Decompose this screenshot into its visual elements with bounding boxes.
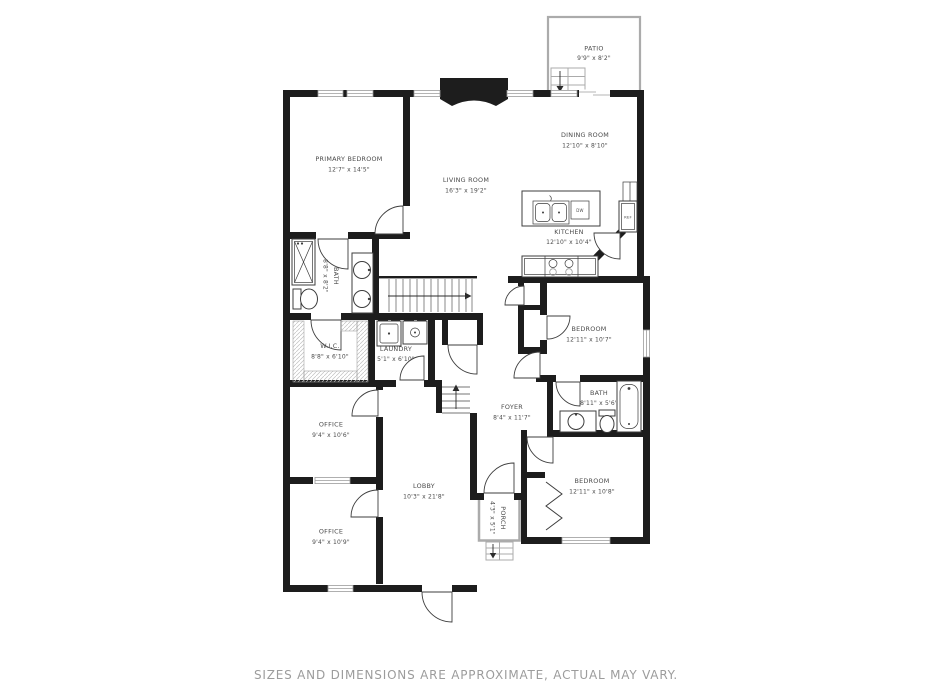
sliding-door <box>579 90 610 98</box>
window <box>562 537 610 543</box>
pantry-cabinet <box>623 182 637 201</box>
svg-text:12'10" x 8'10": 12'10" x 8'10" <box>562 143 608 150</box>
window <box>328 585 353 591</box>
floor-plan: DW REF <box>0 0 933 700</box>
stairs-lobby <box>442 385 470 414</box>
svg-text:BEDROOM: BEDROOM <box>574 477 609 485</box>
window <box>643 330 649 357</box>
kitchen-island: DW <box>522 191 600 226</box>
refrigerator: REF <box>619 201 637 232</box>
stove-counter <box>522 256 598 277</box>
bathtub <box>617 381 641 432</box>
door-bath2 <box>556 382 580 406</box>
dryer <box>403 321 427 344</box>
floor-plan-page: DW REF <box>0 0 933 700</box>
room-label-bedroom-lower: BEDROOM 12'11" x 10'8" <box>569 477 615 496</box>
svg-text:PORCH: PORCH <box>499 506 507 530</box>
svg-text:9'4" x 10'9": 9'4" x 10'9" <box>312 539 350 546</box>
svg-text:LAUNDRY: LAUNDRY <box>380 345 412 353</box>
door-bedroom-mid <box>514 352 540 378</box>
toilet <box>599 410 615 433</box>
stairs-up-arrow <box>465 293 472 300</box>
room-label-primary-bedroom: PRIMARY BEDROOM 12'7" x 14'5" <box>315 155 382 174</box>
dishwasher-label: DW <box>576 208 583 213</box>
room-label-porch: PORCH 4'3" x 5'1" <box>489 501 508 535</box>
svg-text:LIVING ROOM: LIVING ROOM <box>443 176 489 184</box>
room-label-foyer: FOYER 8'4" x 11'7" <box>493 403 531 422</box>
svg-text:9'9" x 8'2": 9'9" x 8'2" <box>577 55 611 62</box>
svg-text:W.I.C.: W.I.C. <box>320 342 340 350</box>
window <box>414 90 440 96</box>
door-front-entry <box>484 463 514 493</box>
svg-text:8'8" x 6'10": 8'8" x 6'10" <box>311 354 349 361</box>
room-label-laundry: LAUNDRY 5'1" x 6'10" <box>377 345 415 363</box>
svg-text:12'11" x 10'8": 12'11" x 10'8" <box>569 489 615 496</box>
room-label-bedroom-mid: BEDROOM 12'11" x 10'7" <box>566 325 612 344</box>
svg-text:FOYER: FOYER <box>501 403 523 411</box>
svg-text:BEDROOM: BEDROOM <box>571 325 606 333</box>
refrigerator-label: REF <box>624 215 632 220</box>
svg-text:12'11" x 10'7": 12'11" x 10'7" <box>566 337 612 344</box>
window <box>551 90 577 96</box>
door-stair-closet <box>448 345 477 374</box>
svg-text:LOBBY: LOBBY <box>413 482 435 490</box>
svg-text:PRIMARY BEDROOM: PRIMARY BEDROOM <box>315 155 382 163</box>
window <box>318 90 343 96</box>
svg-text:5'1" x 6'10": 5'1" x 6'10" <box>377 356 415 363</box>
room-label-dining-room: DINING ROOM 12'10" x 8'10" <box>561 131 609 150</box>
room-label-kitchen: KITCHEN 12'10" x 10'4" <box>546 228 592 246</box>
svg-text:BATH: BATH <box>332 267 340 285</box>
svg-text:8'8" x 8'2": 8'8" x 8'2" <box>322 259 329 293</box>
disclaimer-text: SIZES AND DIMENSIONS ARE APPROXIMATE, AC… <box>254 668 678 682</box>
interior-window <box>315 477 350 483</box>
room-label-bath2: BATH 8'11" x 5'6" <box>580 389 618 407</box>
svg-text:16'3" x 19'2": 16'3" x 19'2" <box>445 188 487 195</box>
room-label-living-room: LIVING ROOM 16'3" x 19'2" <box>443 176 489 195</box>
svg-text:OFFICE: OFFICE <box>319 421 343 429</box>
door-lobby-exit <box>422 592 452 622</box>
room-label-wic: W.I.C. 8'8" x 6'10" <box>311 342 349 361</box>
svg-text:10'3" x 21'8": 10'3" x 21'8" <box>403 494 445 501</box>
window <box>347 90 373 96</box>
svg-text:PATIO: PATIO <box>584 45 603 53</box>
room-label-lobby: LOBBY 10'3" x 21'8" <box>403 482 445 501</box>
svg-text:BATH: BATH <box>590 389 608 397</box>
svg-text:12'7" x 14'5": 12'7" x 14'5" <box>328 167 370 174</box>
sink-vanity <box>560 411 596 432</box>
toilet <box>293 289 318 309</box>
stairs-main <box>379 276 477 312</box>
porch-steps-arrow <box>490 553 496 559</box>
room-label-office-lower: OFFICE 9'4" x 10'9" <box>312 528 350 547</box>
svg-text:OFFICE: OFFICE <box>319 528 343 536</box>
svg-text:9'4" x 10'6": 9'4" x 10'6" <box>312 432 350 439</box>
door-office-lower <box>351 490 378 517</box>
svg-text:4'3" x 5'1": 4'3" x 5'1" <box>489 501 496 535</box>
laundry-fixtures <box>377 318 427 346</box>
shower <box>292 239 315 285</box>
stairs-lobby-arrow <box>453 385 460 392</box>
closet-bifold-doors <box>546 482 562 530</box>
room-label-office-upper: OFFICE 9'4" x 10'6" <box>312 421 350 440</box>
svg-text:KITCHEN: KITCHEN <box>554 228 583 236</box>
svg-text:12'10" x 10'4": 12'10" x 10'4" <box>546 239 592 246</box>
door-primary-bedroom <box>375 206 403 234</box>
svg-text:DINING ROOM: DINING ROOM <box>561 131 609 139</box>
window <box>507 90 533 96</box>
double-sink-vanity <box>352 253 373 313</box>
washer <box>377 321 401 346</box>
svg-text:8'4" x 11'7": 8'4" x 11'7" <box>493 415 531 422</box>
door-office-upper <box>352 390 378 416</box>
door-hall-closet <box>505 286 524 305</box>
svg-text:8'11" x 5'6": 8'11" x 5'6" <box>580 400 618 407</box>
porch-steps <box>486 542 513 560</box>
door-bedroom-lower <box>527 437 553 463</box>
